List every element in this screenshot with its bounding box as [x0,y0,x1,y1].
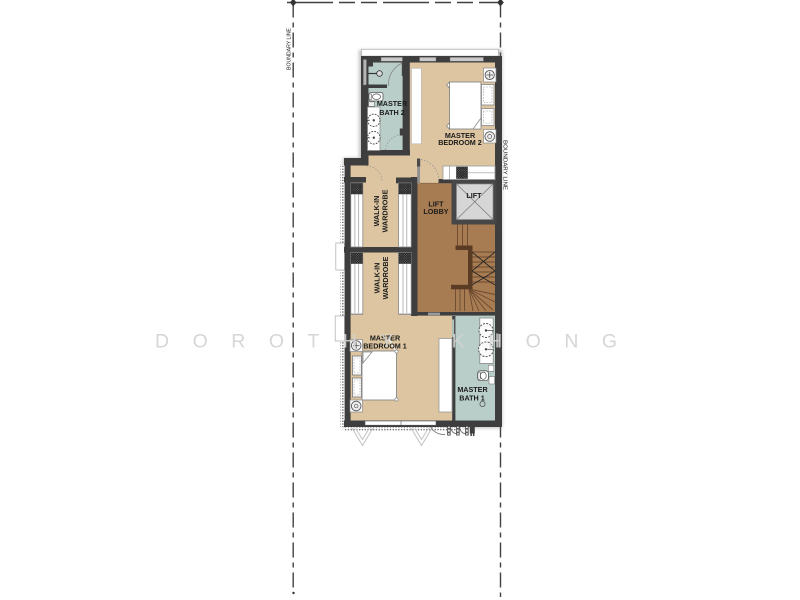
svg-text:LIFT: LIFT [466,191,482,200]
svg-text:BEDROOM 2: BEDROOM 2 [438,138,482,147]
svg-text:DOROTHY KHONG: DOROTHY KHONG [155,331,641,353]
svg-text:BATH 2: BATH 2 [379,108,404,117]
svg-text:WARDROBE: WARDROBE [381,189,390,232]
svg-text:MASTER: MASTER [377,99,408,108]
svg-text:WARDROBE: WARDROBE [381,256,390,299]
svg-text:BATH 1: BATH 1 [459,394,484,403]
svg-text:BOUNDARY LINE: BOUNDARY LINE [287,28,293,70]
svg-text:LOBBY: LOBBY [423,207,448,216]
svg-text:BOUNDARY LINE: BOUNDARY LINE [502,140,508,190]
